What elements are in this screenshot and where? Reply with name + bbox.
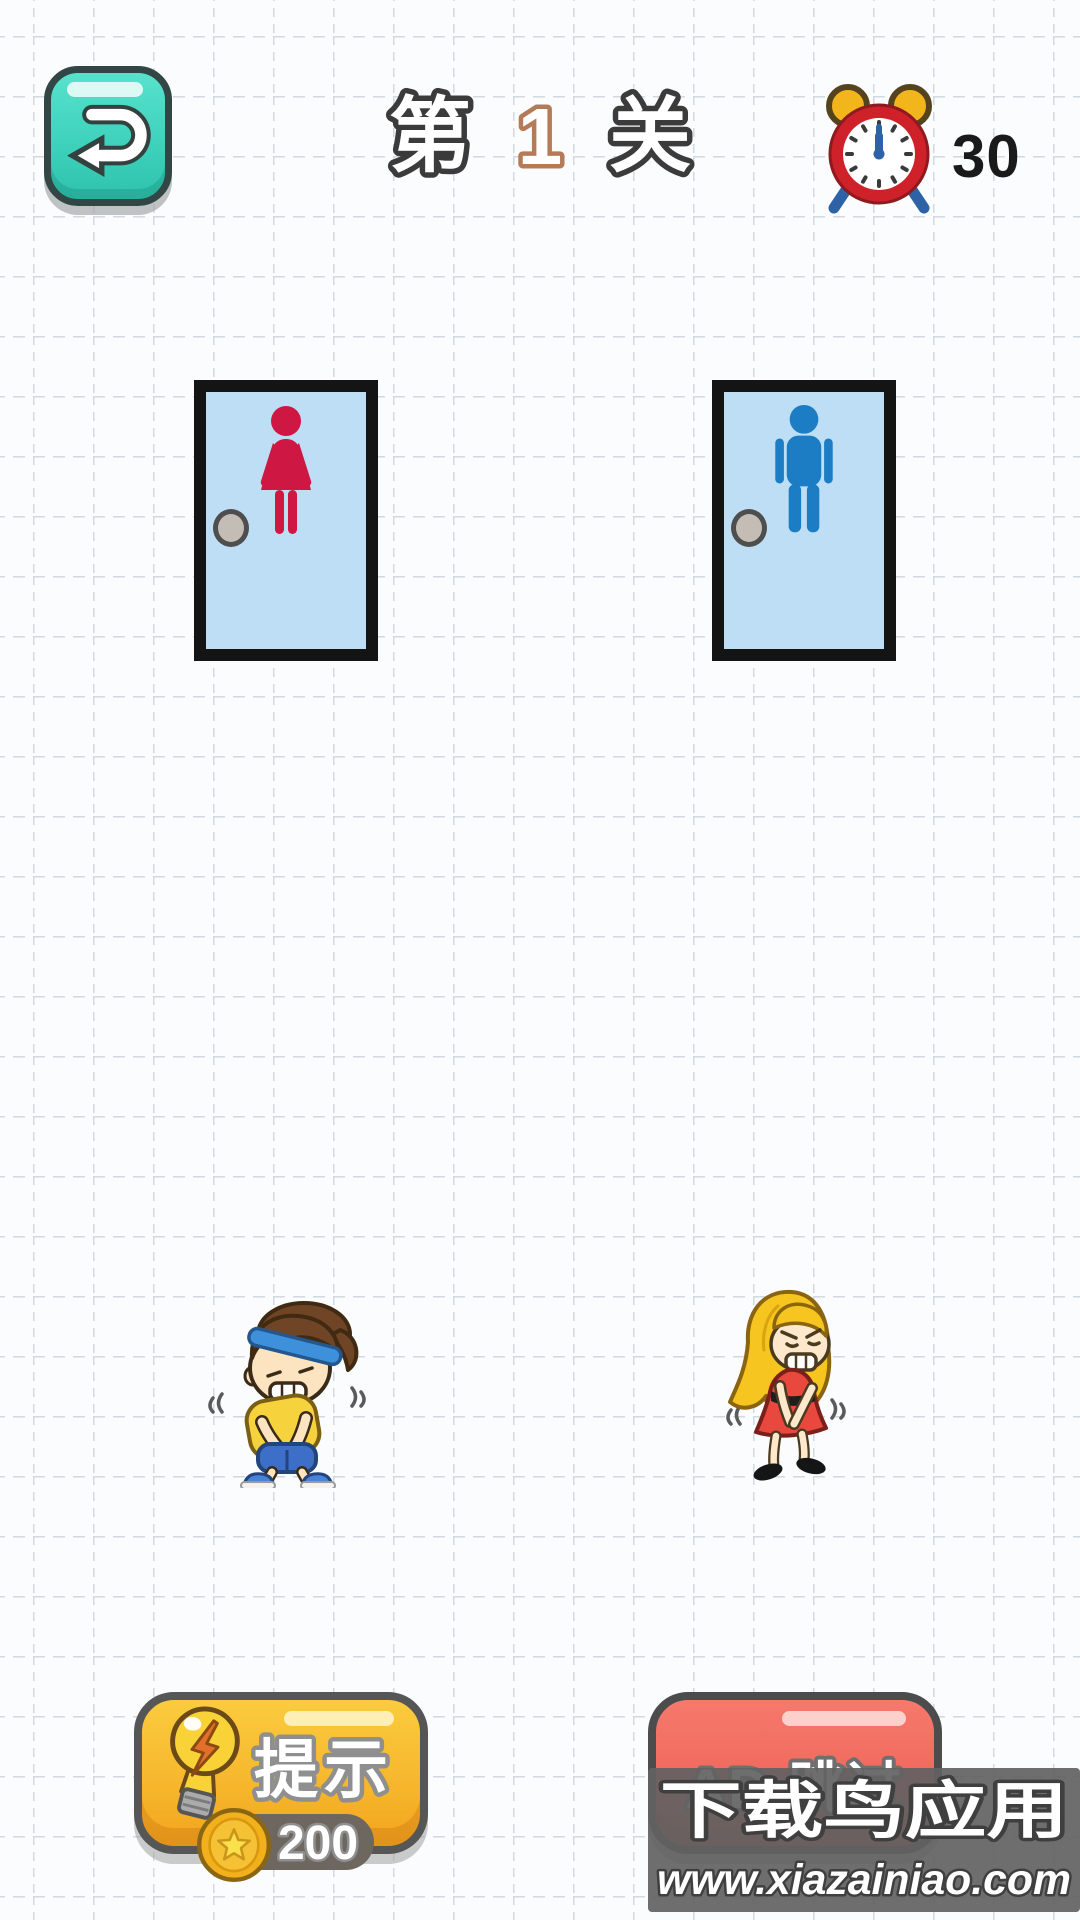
men-restroom-door[interactable]	[712, 380, 896, 661]
watermark: 下载鸟应用 www.xiazainiao.com	[648, 1768, 1080, 1912]
level-prefix: 第	[389, 91, 471, 182]
grid-paper-background	[0, 0, 1080, 1920]
back-button[interactable]	[44, 66, 172, 206]
game-screen: 第 1 关 30	[0, 0, 1080, 1920]
level-suffix: 关	[609, 91, 691, 182]
watermark-url: www.xiazainiao.com	[657, 1856, 1071, 1904]
hint-cost: 200	[278, 1817, 358, 1870]
return-arrow-icon	[51, 73, 165, 199]
level-title: 第 1 关	[360, 70, 720, 185]
watermark-title: 下载鸟应用	[660, 1777, 1068, 1846]
women-restroom-door[interactable]	[194, 380, 378, 661]
level-number: 1	[518, 92, 563, 181]
hint-button[interactable]: 提示 200	[134, 1692, 428, 1854]
hint-label: 提示	[254, 1734, 394, 1806]
door-knob	[731, 509, 767, 547]
boy-needs-toilet-figure[interactable]	[206, 1288, 370, 1488]
girl-needs-toilet-figure[interactable]	[716, 1282, 856, 1487]
timer-value: 30	[952, 122, 1062, 191]
watermark-svg: 下载鸟应用 www.xiazainiao.com	[648, 1768, 1080, 1912]
door-knob	[213, 509, 249, 547]
alarm-clock-icon	[816, 80, 942, 218]
coin-icon	[194, 1804, 274, 1886]
woman-figure-icon	[233, 404, 339, 538]
man-figure-icon	[754, 404, 854, 538]
